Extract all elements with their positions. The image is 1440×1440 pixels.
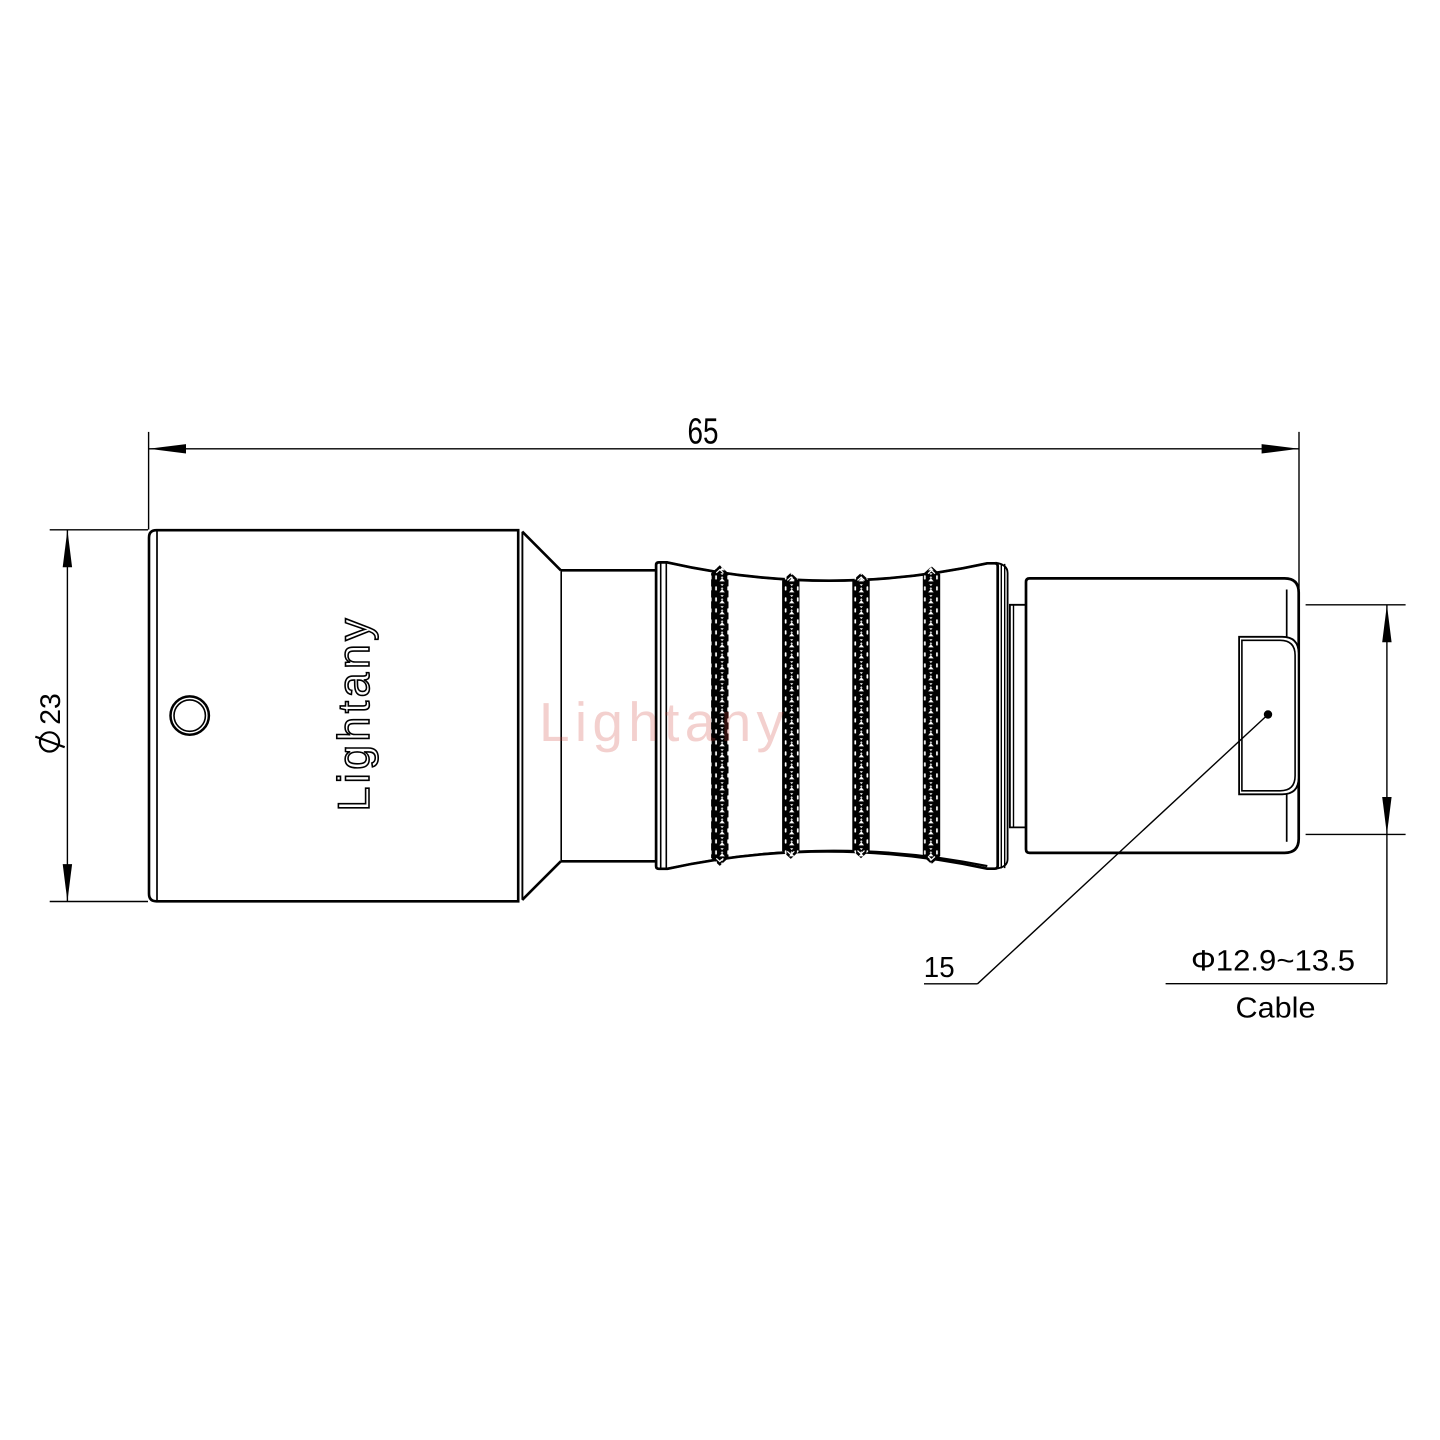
svg-text:Φ12.9~13.5: Φ12.9~13.5 <box>1191 945 1355 978</box>
svg-text:15: 15 <box>924 952 955 984</box>
svg-text:23: 23 <box>35 693 67 725</box>
svg-text:Cable: Cable <box>1236 992 1316 1024</box>
svg-text:65: 65 <box>688 410 719 451</box>
